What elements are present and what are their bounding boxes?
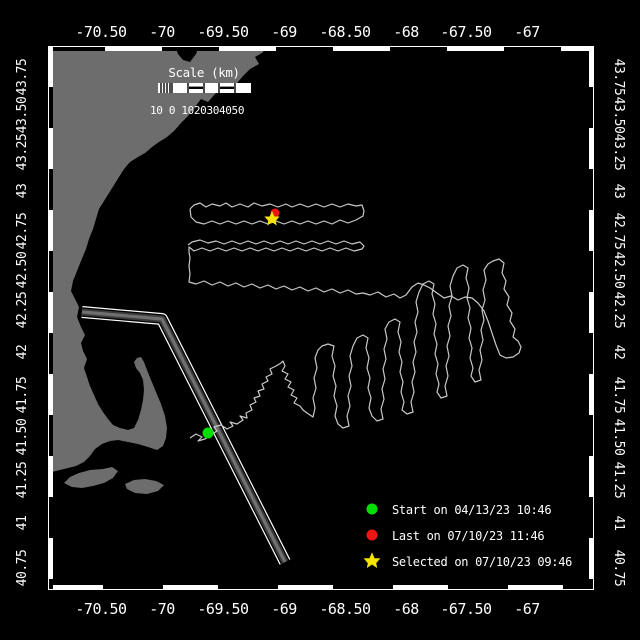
top-axis-label: -69 xyxy=(271,23,297,41)
left-axis-label: 42.25 xyxy=(15,292,30,329)
legend-last-label: Last on 07/10/23 11:46 xyxy=(392,529,544,543)
right-axis-label: 42.50 xyxy=(611,252,626,289)
right-axis-label: 43 xyxy=(611,184,626,199)
bottom-axis-label: -69.50 xyxy=(197,600,249,618)
track-map-window: Scale (km) 10 0 1020304050 Start on 04/1… xyxy=(0,0,640,640)
top-axis-label: -67.50 xyxy=(440,23,492,41)
map-canvas[interactable]: Scale (km) 10 0 1020304050 Start on 04/1… xyxy=(0,0,640,640)
right-axis-label: 41 xyxy=(611,516,626,531)
bottom-axis-label: -68.50 xyxy=(319,600,371,618)
left-axis-label: 43.50 xyxy=(15,97,30,134)
bottom-axis-label: -70.50 xyxy=(75,600,127,618)
left-axis-label: 41.50 xyxy=(15,419,30,456)
start-marker[interactable] xyxy=(203,428,214,439)
legend-last-dot-icon xyxy=(367,530,378,541)
right-axis-label: 43.25 xyxy=(611,134,626,171)
left-axis-label: 43.25 xyxy=(15,134,30,171)
bottom-axis-label: -67.50 xyxy=(440,600,492,618)
left-axis-label: 41.75 xyxy=(15,377,30,414)
right-axis-label: 41.75 xyxy=(611,377,626,414)
right-axis-label: 43.75 xyxy=(611,59,626,96)
left-axis-label: 43.75 xyxy=(15,59,30,96)
right-axis-label: 43.50 xyxy=(611,97,626,134)
right-axis-label: 42.75 xyxy=(611,213,626,250)
scale-bar-numbers: 10 0 1020304050 xyxy=(150,104,244,117)
left-axis-label: 42.75 xyxy=(15,213,30,250)
bottom-axis-label: -69 xyxy=(271,600,297,618)
left-axis-label: 42 xyxy=(15,345,30,360)
legend-selected-label: Selected on 07/10/23 09:46 xyxy=(392,555,572,569)
top-axis-label: -68.50 xyxy=(319,23,371,41)
right-axis-label: 42 xyxy=(611,345,626,360)
left-axis-label: 41 xyxy=(15,516,30,531)
right-axis-label: 41.50 xyxy=(611,419,626,456)
top-axis-label: -70.50 xyxy=(75,23,127,41)
legend-start-label: Start on 04/13/23 10:46 xyxy=(392,503,551,517)
bottom-axis-label: -67 xyxy=(514,600,540,618)
right-axis-label: 42.25 xyxy=(611,292,626,329)
left-axis-label: 41.25 xyxy=(15,462,30,499)
top-axis-label: -70 xyxy=(149,23,175,41)
legend-start-dot-icon xyxy=(367,504,378,515)
legend: Start on 04/13/23 10:46 Last on 07/10/23… xyxy=(364,503,573,569)
left-axis-label: 40.75 xyxy=(15,550,30,587)
right-axis-label: 40.75 xyxy=(611,550,626,587)
left-axis-label: 42.50 xyxy=(15,252,30,289)
top-axis-label: -67 xyxy=(514,23,540,41)
left-axis-label: 43 xyxy=(15,184,30,199)
bottom-axis-label: -68 xyxy=(393,600,419,618)
top-axis-label: -68 xyxy=(393,23,419,41)
top-axis-label: -69.50 xyxy=(197,23,249,41)
scale-bar-title: Scale (km) xyxy=(168,65,239,80)
bottom-axis-label: -70 xyxy=(149,600,175,618)
right-axis-label: 41.25 xyxy=(611,462,626,499)
